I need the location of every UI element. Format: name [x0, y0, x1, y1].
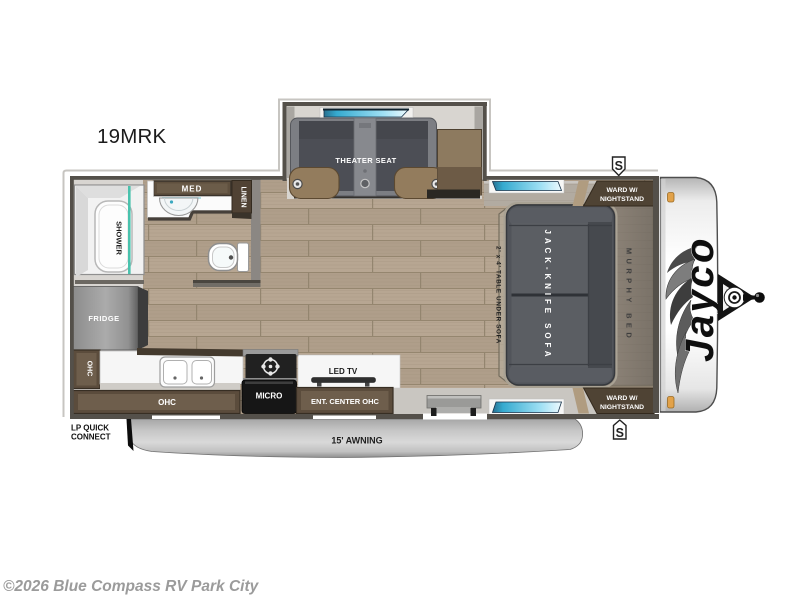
svg-text:ENT. CENTER OHC: ENT. CENTER OHC	[311, 397, 380, 406]
svg-text:15' AWNING: 15' AWNING	[331, 436, 382, 446]
svg-text:NIGHTSTAND: NIGHTSTAND	[600, 404, 644, 411]
svg-text:THEATER SEAT: THEATER SEAT	[335, 156, 396, 165]
svg-text:19MRK: 19MRK	[97, 125, 166, 148]
svg-text:SHOWER: SHOWER	[115, 221, 124, 255]
svg-text:LP QUICK: LP QUICK	[71, 424, 109, 433]
svg-text:Jayco: Jayco	[678, 236, 722, 362]
svg-text:LINEN: LINEN	[240, 187, 247, 208]
svg-text:JACK-KNIFE SOFA: JACK-KNIFE SOFA	[543, 230, 552, 361]
svg-text:WARD W/: WARD W/	[607, 395, 638, 402]
svg-text:MURPHY BED: MURPHY BED	[625, 248, 634, 342]
svg-text:S: S	[616, 426, 624, 440]
svg-text:FRIDGE: FRIDGE	[88, 314, 119, 323]
svg-text:CONNECT: CONNECT	[71, 433, 111, 442]
svg-text:MED: MED	[182, 185, 203, 194]
svg-text:NIGHTSTAND: NIGHTSTAND	[600, 196, 644, 203]
svg-text:LED TV: LED TV	[329, 367, 358, 376]
svg-text:OHC: OHC	[158, 398, 176, 407]
svg-text:MICRO: MICRO	[256, 392, 283, 401]
svg-text:WARD W/: WARD W/	[607, 187, 638, 194]
svg-text:OHC: OHC	[86, 361, 93, 377]
svg-text:©2026 Blue Compass RV Park Cit: ©2026 Blue Compass RV Park City	[3, 578, 260, 595]
svg-text:2' x 4' TABLE UNDER SOFA: 2' x 4' TABLE UNDER SOFA	[495, 246, 502, 344]
svg-text:S: S	[615, 159, 623, 173]
